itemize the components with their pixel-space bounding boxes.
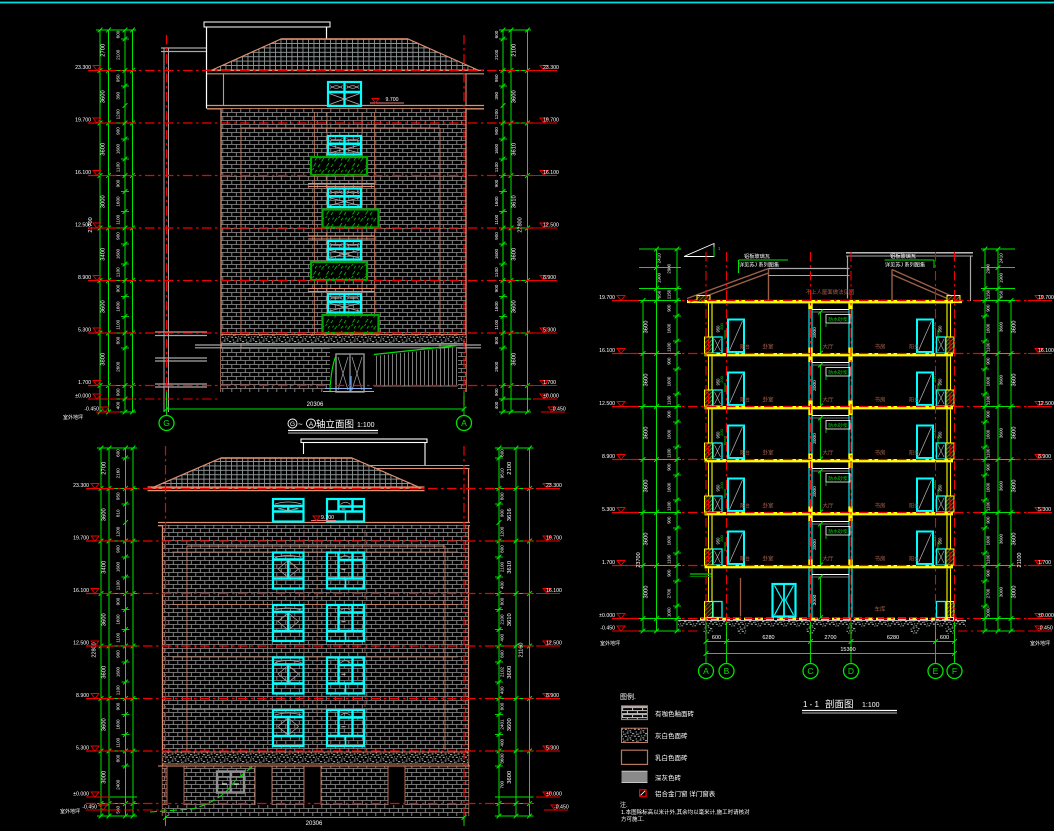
svg-text:200: 200 [719,428,724,435]
svg-text:1100: 1100 [494,267,499,277]
svg-text:室外地坪: 室外地坪 [600,640,620,647]
svg-text:2700: 2700 [667,588,672,598]
svg-text:16.100: 16.100 [543,170,559,176]
svg-text:-0.450: -0.450 [554,805,569,811]
svg-text:3600: 3600 [512,90,518,103]
svg-text:3610: 3610 [512,143,518,156]
svg-text:F: F [952,666,957,676]
svg-text:2600: 2600 [494,361,499,372]
svg-text:3800: 3800 [101,353,107,366]
svg-text:800: 800 [500,650,505,658]
svg-text:900: 900 [116,127,121,135]
svg-text:200: 200 [719,322,724,329]
svg-text:2160: 2160 [116,468,121,479]
svg-text:810: 810 [116,509,121,517]
svg-text:3600: 3600 [644,427,650,440]
svg-text:铝合金门窗 详门窗表: 铝合金门窗 详门窗表 [655,789,716,798]
svg-text:1600: 1600 [116,248,121,259]
svg-text:3400: 3400 [101,248,107,261]
svg-text:卦室: 卦室 [762,449,774,457]
svg-text:5.300: 5.300 [602,507,615,513]
svg-text:G: G [290,421,295,428]
svg-text:12.500: 12.500 [543,223,559,229]
svg-text:5.300: 5.300 [543,328,556,334]
svg-text:900: 900 [667,410,672,418]
svg-text:700: 700 [500,780,505,788]
svg-text:1600: 1600 [986,376,991,386]
svg-text:23.300: 23.300 [546,483,562,489]
svg-text:6280: 6280 [887,635,899,641]
svg-text:书房: 书房 [874,449,886,457]
svg-text:400: 400 [494,401,499,409]
svg-text:600: 600 [940,635,949,641]
svg-text:1600: 1600 [116,666,121,677]
svg-text:1:100: 1:100 [357,422,375,429]
svg-text:2700: 2700 [824,635,836,641]
svg-text:±0.000: ±0.000 [1038,613,1054,619]
svg-text:1200: 1200 [500,526,505,537]
svg-text:1100: 1100 [494,162,499,172]
svg-text:1100: 1100 [986,554,991,564]
svg-text:400: 400 [500,738,505,746]
svg-text:2410: 2410 [657,253,662,264]
svg-text:1900: 1900 [999,272,1004,283]
svg-text:600: 600 [494,30,499,38]
svg-text:3000: 3000 [644,586,650,599]
svg-text:1900: 1900 [657,272,662,283]
svg-text:1.700: 1.700 [1038,560,1051,566]
svg-text:900: 900 [986,569,991,577]
svg-text:3600: 3600 [1012,480,1018,493]
svg-text:1100: 1100 [116,319,121,329]
svg-text:±0.000: ±0.000 [599,613,615,619]
svg-text:大厅: 大厅 [822,555,834,563]
svg-text:900: 900 [494,232,499,240]
svg-text:200: 200 [719,481,724,488]
svg-text:1100: 1100 [986,501,991,511]
svg-text:800: 800 [116,754,121,762]
svg-text:3600: 3600 [101,90,107,103]
svg-text:卦室: 卦室 [762,555,774,563]
svg-text:8.900: 8.900 [602,454,615,460]
svg-text:9.700: 9.700 [386,97,399,103]
svg-text:±0.000: ±0.000 [543,394,559,400]
svg-text:阳台: 阳台 [909,397,919,404]
svg-text:轴立面图: 轴立面图 [316,419,354,431]
svg-text:阳台: 阳台 [909,344,919,351]
svg-text:3610: 3610 [507,613,513,626]
svg-text:阳台: 阳台 [740,503,750,510]
svg-text:1000: 1000 [986,607,991,617]
svg-text:900: 900 [667,304,672,312]
svg-text:3610: 3610 [512,195,518,208]
svg-text:C: C [807,666,813,676]
svg-text:3600: 3600 [999,374,1004,385]
svg-text:800: 800 [500,545,505,553]
svg-text:1200: 1200 [116,109,121,120]
svg-text:2102: 2102 [500,666,505,677]
svg-text:3600: 3600 [999,321,1004,332]
svg-text:900: 900 [116,388,121,396]
svg-text:2100: 2100 [500,561,505,572]
svg-text:900: 900 [667,516,672,524]
svg-text:20306: 20306 [307,402,324,408]
svg-text:不上人屋面做法见图: 不上人屋面做法见图 [806,288,855,296]
svg-text:1:100: 1:100 [862,702,880,709]
svg-text:1100: 1100 [986,342,991,352]
svg-text:1100: 1100 [494,319,499,329]
svg-text:3000: 3000 [102,771,108,784]
svg-text:400: 400 [500,686,505,694]
svg-text:900: 900 [116,702,121,710]
svg-text:800: 800 [116,336,121,344]
svg-text:3600: 3600 [512,248,518,261]
svg-text:防水砂浆: 防水砂浆 [828,475,847,482]
svg-text:12.500: 12.500 [1038,401,1054,407]
svg-text:1600: 1600 [667,376,672,386]
svg-text:9.700: 9.700 [321,515,334,521]
svg-text:书房: 书房 [874,396,886,404]
svg-text:900: 900 [494,284,499,292]
svg-text:D: D [848,666,854,676]
svg-text:3600: 3600 [1012,374,1018,387]
svg-text:8.900: 8.900 [543,275,556,281]
svg-text:1.700: 1.700 [602,560,615,566]
svg-text:1.700: 1.700 [543,380,556,386]
svg-text:方可施工.: 方可施工. [621,815,645,823]
svg-text:1100: 1100 [116,580,121,590]
svg-text:900: 900 [494,179,499,187]
svg-text:1600: 1600 [667,323,672,333]
svg-text:-0.450: -0.450 [600,626,615,632]
svg-text:1600: 1600 [667,429,672,439]
svg-text:大厅: 大厅 [822,343,834,351]
svg-text:900: 900 [986,410,991,418]
svg-text:200: 200 [932,428,937,435]
svg-text:3600: 3600 [512,353,518,366]
svg-text:1600: 1600 [116,143,121,154]
svg-text:灰白色面砖: 灰白色面砖 [655,731,688,740]
svg-text:铝板玻璃瓦: 铝板玻璃瓦 [744,252,770,260]
svg-text:16.100: 16.100 [1038,348,1054,354]
svg-text:图例.: 图例. [620,692,636,701]
svg-text:3600: 3600 [102,613,108,626]
svg-text:1600: 1600 [986,535,991,545]
svg-text:900: 900 [494,127,499,135]
svg-text:5.300: 5.300 [546,746,559,752]
svg-text:200: 200 [719,534,724,541]
svg-text:阳台: 阳台 [740,397,750,404]
svg-text:390: 390 [494,91,499,99]
svg-text:剖面图: 剖面图 [825,699,854,711]
svg-text:车库: 车库 [874,605,886,613]
svg-text:800: 800 [500,702,505,710]
svg-text:2700: 2700 [986,588,991,598]
svg-text:注.: 注. [620,801,628,809]
svg-text:1200: 1200 [494,109,499,120]
svg-text:~: ~ [298,420,303,429]
svg-text:3600: 3600 [1012,427,1018,440]
svg-text:3000: 3000 [101,195,107,208]
svg-text:1600: 1600 [116,561,121,572]
svg-text:1100: 1100 [116,214,121,224]
svg-text:19.700: 19.700 [1038,295,1054,301]
svg-text:±0.000: ±0.000 [73,792,89,798]
svg-text:2100: 2100 [500,614,505,625]
svg-text:阳台: 阳台 [740,556,750,563]
svg-text:1100: 1100 [986,395,991,405]
svg-text:1600: 1600 [986,323,991,333]
svg-text:900: 900 [986,463,991,471]
svg-text:900: 900 [986,357,991,365]
svg-text:1600: 1600 [667,535,672,545]
svg-text:3400: 3400 [102,561,108,574]
svg-text:900: 900 [116,597,121,605]
svg-text:-0.450: -0.450 [1038,626,1053,632]
svg-text:深灰色砖: 深灰色砖 [655,773,682,782]
svg-text:8.900: 8.900 [546,693,559,699]
svg-text:3600: 3600 [507,771,513,784]
svg-text:2100: 2100 [512,44,518,57]
svg-text:卦室: 卦室 [762,343,774,351]
svg-text:有咖色釉面砖: 有咖色釉面砖 [655,709,695,718]
svg-text:书房: 书房 [874,343,886,351]
svg-text:900: 900 [500,509,505,517]
svg-text:卦室: 卦室 [762,502,774,510]
svg-text:3600: 3600 [102,508,108,521]
svg-text:3600: 3600 [102,666,108,679]
svg-text:阳台: 阳台 [909,556,919,563]
svg-text:950: 950 [494,74,499,82]
svg-text:6280: 6280 [762,635,774,641]
svg-text:2401: 2401 [500,719,505,730]
svg-text:200: 200 [932,375,937,382]
svg-text:1100: 1100 [116,267,121,277]
svg-text:600: 600 [500,449,505,457]
svg-text:900: 900 [986,516,991,524]
svg-text:3000: 3000 [812,594,818,605]
svg-text:900: 900 [116,179,121,187]
svg-text:3600: 3600 [500,753,505,764]
svg-text:1100: 1100 [667,448,672,458]
svg-text:200: 200 [719,375,724,382]
svg-text:1600: 1600 [116,719,121,730]
svg-text:防水砂浆: 防水砂浆 [828,316,847,323]
svg-text:详见苏J 系列图集: 详见苏J 系列图集 [885,261,926,269]
svg-text:900: 900 [116,545,121,553]
svg-text:1100: 1100 [116,685,121,695]
svg-text:阳台: 阳台 [909,450,919,457]
svg-text:防水砂浆: 防水砂浆 [828,528,847,535]
svg-text:5.300: 5.300 [1038,507,1051,513]
svg-text:A: A [309,421,314,428]
svg-text:12.500: 12.500 [546,641,562,647]
svg-text:1600: 1600 [116,301,121,312]
svg-text:书房: 书房 [874,502,886,510]
svg-text:390: 390 [116,91,121,99]
svg-text:1600: 1600 [494,248,499,259]
svg-text:1600: 1600 [116,614,121,625]
svg-text:1100: 1100 [667,342,672,352]
svg-text:阳台: 阳台 [909,503,919,510]
svg-text:12.500: 12.500 [599,401,615,407]
svg-text:20306: 20306 [306,821,323,826]
svg-text:-0.450: -0.450 [551,407,566,413]
svg-text:900: 900 [116,284,121,292]
svg-text:16.100: 16.100 [546,588,562,594]
svg-text:3616: 3616 [507,508,513,521]
svg-text:400: 400 [500,633,505,641]
svg-text:1150: 1150 [986,289,991,299]
svg-text:3000: 3000 [812,433,818,444]
svg-text:3600: 3600 [507,718,513,731]
svg-text:3600: 3600 [101,300,107,313]
svg-text:铝板玻璃瓦: 铝板玻璃瓦 [890,252,916,260]
svg-text:22800: 22800 [518,217,524,232]
svg-text:3000: 3000 [812,486,818,497]
svg-text:3000: 3000 [812,539,818,550]
svg-text:900: 900 [116,650,121,658]
svg-text:8.900: 8.900 [1038,454,1051,460]
svg-text:1100: 1100 [986,448,991,458]
svg-text:3600: 3600 [999,480,1004,491]
svg-text:900: 900 [667,463,672,471]
svg-text:1150: 1150 [667,289,672,299]
svg-text:900: 900 [116,232,121,240]
svg-text:书房: 书房 [874,555,886,563]
svg-text:防水砂浆: 防水砂浆 [828,422,847,429]
svg-text:乳白色面砖: 乳白色面砖 [655,753,688,762]
svg-text:600: 600 [712,635,721,641]
svg-text:2100: 2100 [116,49,121,60]
svg-text:950: 950 [116,492,121,500]
svg-text:防水砂浆: 防水砂浆 [828,369,847,376]
svg-text:1200: 1200 [116,526,121,537]
svg-text:1100: 1100 [667,501,672,511]
svg-text:1600: 1600 [494,143,499,154]
svg-text:3600: 3600 [102,718,108,731]
svg-text:400: 400 [500,581,505,589]
svg-text:2410: 2410 [999,253,1004,264]
svg-text:16.100: 16.100 [599,348,615,354]
svg-text:A: A [703,666,709,676]
svg-text:3600: 3600 [644,480,650,493]
svg-text:400: 400 [116,401,121,409]
svg-text:±0.000: ±0.000 [546,792,562,798]
svg-text:A: A [461,418,467,428]
svg-text:9510: 9510 [500,468,505,479]
svg-text:3000: 3000 [812,380,818,391]
svg-text:2900: 2900 [986,263,991,273]
svg-text:1600: 1600 [986,429,991,439]
svg-text:室外地坪: 室外地坪 [1030,640,1050,647]
svg-text:E: E [933,666,939,676]
svg-text:3600: 3600 [999,533,1004,544]
svg-text:650: 650 [999,290,1004,298]
svg-text:21100: 21100 [1017,553,1023,568]
svg-text:1100: 1100 [116,632,121,642]
svg-text:800: 800 [500,492,505,500]
svg-text:3600: 3600 [644,321,650,334]
svg-text:1600: 1600 [494,301,499,312]
svg-text:900: 900 [667,357,672,365]
svg-text:卦室: 卦室 [762,396,774,404]
svg-text:2400: 2400 [116,779,121,790]
svg-text:1 - 1: 1 - 1 [803,700,820,709]
svg-text:1.本图除标高以米计外,其余均以毫米计,施工时请核对: 1.本图除标高以米计外,其余均以毫米计,施工时请核对 [621,808,750,816]
svg-text:1600: 1600 [494,196,499,207]
svg-text:3000: 3000 [812,327,818,338]
svg-text:3610: 3610 [507,561,513,574]
svg-text:大厅: 大厅 [822,396,834,404]
svg-text:1000: 1000 [667,607,672,617]
svg-text:800: 800 [500,597,505,605]
svg-text:3600: 3600 [999,427,1004,438]
svg-text:200: 200 [932,534,937,541]
svg-text:3600: 3600 [1012,321,1018,334]
svg-text:19.700: 19.700 [546,536,562,542]
svg-text:2600: 2600 [116,361,121,372]
svg-text:1600: 1600 [667,482,672,492]
svg-text:3600: 3600 [507,666,513,679]
svg-text:15300: 15300 [840,647,855,653]
svg-text:大厅: 大厅 [822,502,834,510]
svg-text:3000: 3000 [1012,586,1018,599]
svg-text:200: 200 [932,481,937,488]
svg-text:3600: 3600 [512,300,518,313]
svg-text:800: 800 [494,336,499,344]
svg-text:600: 600 [116,449,121,457]
svg-text:阳台: 阳台 [740,344,750,351]
svg-text:3600: 3600 [644,533,650,546]
svg-text:-0.450: -0.450 [84,407,99,413]
svg-text:650: 650 [657,290,662,298]
svg-text:600: 600 [116,30,121,38]
svg-text:2100: 2100 [507,462,513,475]
svg-text:1100: 1100 [667,395,672,405]
svg-text:2700: 2700 [101,44,107,57]
svg-text:200: 200 [932,322,937,329]
svg-text:G: G [163,418,170,428]
svg-text:900: 900 [494,388,499,396]
svg-text:900: 900 [667,569,672,577]
svg-text:19.700: 19.700 [543,118,559,124]
svg-text:B: B [724,666,730,676]
svg-text:室外地坪: 室外地坪 [63,414,83,421]
svg-text:900: 900 [986,304,991,312]
svg-text:2700: 2700 [102,462,108,475]
svg-text:1100: 1100 [494,214,499,224]
svg-text:1100: 1100 [667,554,672,564]
svg-text:1100: 1100 [116,162,121,172]
svg-text:19.700: 19.700 [599,295,615,301]
svg-text:2900: 2900 [667,263,672,273]
svg-text:3000: 3000 [999,586,1004,597]
svg-text:23.300: 23.300 [543,65,559,71]
svg-text:3600: 3600 [101,143,107,156]
svg-text:950: 950 [116,74,121,82]
svg-text:21160: 21160 [519,643,525,658]
svg-text:大厅: 大厅 [822,449,834,457]
svg-text:详见苏J 系列图集: 详见苏J 系列图集 [739,261,780,269]
svg-text:3600: 3600 [1012,533,1018,546]
svg-text:1100: 1100 [116,737,121,747]
svg-text:2100: 2100 [494,49,499,60]
svg-text:室外地坪: 室外地坪 [60,808,80,815]
svg-text:3600: 3600 [644,374,650,387]
svg-text:1600: 1600 [986,482,991,492]
svg-text:阳台: 阳台 [740,450,750,457]
